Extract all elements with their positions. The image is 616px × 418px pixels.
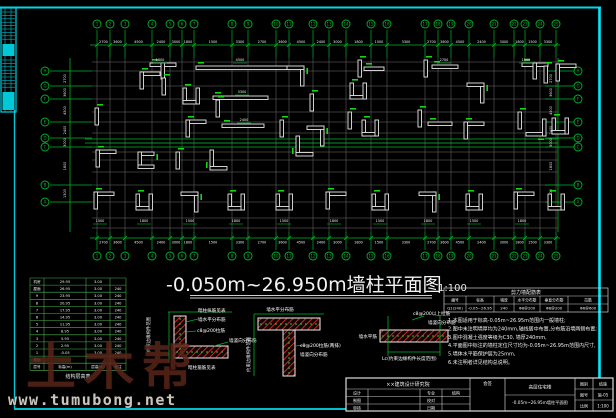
dimension-text-left: 3600 (63, 88, 67, 97)
axis-label-top: 25 (553, 22, 559, 27)
axis-label-top: 19 (448, 22, 454, 27)
wall-dim-mark (516, 188, 522, 190)
wall-dim-mark (326, 128, 328, 134)
plan-dimension-text: 1500 (280, 219, 289, 223)
floor-table-cell: 3.00 (94, 316, 103, 320)
dimension-text-bottom: 1800 (515, 241, 524, 245)
watermark-brand: 土木帮 (26, 338, 200, 396)
wall-outline (385, 194, 389, 210)
wall-dim-mark (224, 120, 230, 122)
axis-label-bottom: 3 (124, 254, 127, 259)
dimension-text-bottom: 2400 (157, 241, 166, 245)
floor-table-cell: 9 (36, 294, 39, 298)
wall-dim-mark (215, 92, 221, 94)
floor-table-cell: 3.00 (94, 301, 103, 305)
wall-outline (418, 110, 422, 127)
dimension-text-bottom: 2700 (427, 241, 436, 245)
wall-segment (136, 190, 153, 210)
binding-strip (1, 8, 16, 112)
dimension-text-top: 3300 (236, 40, 245, 44)
axis-label-bottom: 14 (343, 254, 349, 259)
titleblock-right-value: 结施 (599, 381, 607, 387)
wall-outline (561, 194, 565, 210)
wall-dim-mark (466, 118, 472, 120)
wall-dim-mark (538, 138, 544, 140)
dimension-text-top: 2700 (427, 40, 436, 44)
titleblock-cell: 专业 (427, 390, 435, 396)
wall-outline (216, 100, 220, 117)
wall-outline (176, 152, 180, 169)
dimension-text-top: 3000 (333, 40, 342, 44)
drawing-scale: 1:100 (438, 283, 467, 294)
shear-wall-table: 剪力墙配筋表编号标高墙厚水平分布筋垂直分布筋拉筋Q1(240)-0.05~26.… (444, 288, 608, 312)
wall-segment (350, 79, 367, 99)
wall-outline (556, 64, 560, 81)
wall-segment (276, 190, 293, 210)
floor-table-cell: 240 (115, 301, 123, 305)
dimension-text-bottom: 3000 (333, 241, 342, 245)
wall-outline (138, 152, 142, 166)
axis-label-top: 4 (151, 22, 154, 27)
dimension-text-top: 3300 (544, 40, 553, 44)
dimension-text-bottom: 3600 (278, 241, 287, 245)
detail3-label-lc: Lc(约束边缘构件长度范围) (382, 355, 437, 362)
dimension-text-left: 3000 (63, 138, 67, 147)
wall-segment (464, 118, 484, 139)
dimension-text-top: 1500 (209, 40, 218, 44)
wall-dim-mark (96, 188, 102, 190)
plan-dimension-text: 1800 (518, 219, 527, 223)
wall-dim-mark (468, 190, 474, 192)
wall-outline (479, 194, 483, 210)
axis-label-top: 20 (466, 22, 472, 27)
wall-dim-mark (278, 190, 284, 192)
dimension-text-top: 1800 (515, 40, 524, 44)
note-line: 5.墙体水平筋保护层为25mm, (448, 351, 516, 358)
dimension-text-bottom: 2700 (258, 241, 267, 245)
wall-table-title: 剪力墙配筋表 (511, 289, 541, 296)
axis-label-bottom: 2 (109, 254, 112, 259)
wall-segment (556, 60, 576, 81)
wall-dim-mark (178, 148, 184, 150)
watermark-url: www.tumubong.net (8, 391, 177, 409)
wall-table-cell: Φ8@200 (519, 306, 536, 311)
wall-dim-mark (142, 68, 148, 70)
detail2-label-vert: 墙竖向分布筋 (300, 351, 328, 358)
wall-outline (210, 167, 227, 171)
wall-dim-mark (438, 194, 440, 200)
wall-outline (375, 120, 379, 136)
dimension-text-left: 2400 (63, 126, 67, 135)
wall-outline (287, 66, 304, 70)
axis-label-left: E (44, 120, 47, 125)
axis-label-top: 5 (169, 22, 172, 27)
wall-outline (162, 78, 166, 95)
axis-label-left: H (43, 69, 46, 74)
dimension-text-top: 3600 (440, 40, 449, 44)
plan-dimension-text: 2400 (240, 118, 249, 122)
wall-dim-mark (486, 85, 488, 91)
titleblock-right-label: 图号 (580, 392, 588, 398)
wall-table-header: 水平分布筋 (518, 298, 537, 303)
wall-outline (372, 207, 386, 211)
floor-table-cell: 240 (115, 316, 123, 320)
wall-outline (467, 83, 484, 87)
plan-dimension-text: 1500 (96, 219, 105, 223)
sheet-title-block: ××建筑设计研究院设计专业结构制图校对审核日期会签高层住宅楼-0.05m~26.… (346, 378, 613, 411)
dimension-text-top: 3000 (500, 40, 509, 44)
detail-t-junction: 墙水平分布筋 c8@200拉筋(两排) 墙竖向分布筋 约束边缘构件范围 (245, 306, 341, 376)
dimension-text-bottom: 1500 (375, 241, 384, 245)
titleblock-right-value: 施-05 (598, 392, 609, 398)
floor-plan: 1122270027003336003600444500450055240024… (41, 20, 582, 260)
wall-dim-mark (312, 90, 318, 92)
wall-outline (358, 60, 362, 77)
wall-segment (358, 56, 366, 77)
dimension-text-bottom: 3300 (544, 241, 553, 245)
wall-outline (96, 150, 100, 167)
binding-strip-text-block (3, 44, 15, 56)
wall-segment (466, 190, 483, 210)
dimension-text-top: 1800 (354, 40, 363, 44)
wall-outline (307, 126, 324, 130)
wall-dim-mark (366, 63, 372, 65)
floor-table-cell: 11.95 (60, 323, 70, 327)
wall-outline (350, 96, 364, 100)
axis-label-top: 9 (247, 22, 250, 27)
axis-label-bottom: 6 (181, 254, 184, 259)
dimension-text-top: 2700 (258, 40, 267, 44)
wall-outline (518, 112, 522, 129)
plan-dimension-text: 1800 (232, 219, 241, 223)
plan-dimension-text: 1500 (470, 219, 479, 223)
wall-table-header: 编号 (451, 298, 459, 303)
titleblock-cell: 审核 (353, 405, 361, 411)
wall-dim-mark (364, 116, 370, 118)
wall-dim-mark (156, 154, 158, 160)
note-line: 3.图中混凝土强度等级为C30, 墙厚240mm, (448, 334, 547, 341)
plan-dimension-text: 1500 (376, 219, 385, 223)
floor-table-cell: 机房 (33, 279, 41, 284)
page-title: -0.050m~26.950m墙柱平面图 (166, 274, 442, 296)
floor-table-cell: 20.95 (60, 301, 70, 305)
dimension-text-bottom: 3600 (113, 241, 122, 245)
dimension-text-top: 3300 (402, 40, 411, 44)
wall-outline (280, 120, 284, 137)
titleblock-cell: 制图 (353, 397, 361, 403)
floor-table-cell: 8.95 (61, 330, 69, 334)
wall-outline (222, 124, 264, 128)
detail2-label-tie: c8@200拉筋(两排) (300, 342, 341, 349)
titleblock-cell: 设计 (353, 390, 361, 396)
detail1-label-top: 暗柱纵筋见表 (198, 307, 226, 314)
dimension-text-left: 1800 (63, 162, 67, 171)
titleblock-project: 高层住宅楼 (529, 384, 552, 391)
floor-table-cell: 240 (115, 308, 123, 312)
dimension-text-top: 2400 (317, 40, 326, 44)
wall-outline (364, 67, 384, 71)
wall-dim-mark (98, 146, 104, 148)
floor-table-cell: 17.95 (60, 308, 70, 312)
axis-label-bottom: 13 (326, 254, 332, 259)
axis-label-top: 22 (511, 22, 517, 27)
axis-label-top: 6 (181, 22, 184, 27)
axis-label-left: C (44, 145, 47, 150)
floor-table-cell: 26.95 (60, 287, 70, 291)
floor-table-cell: 屋面 (33, 286, 41, 291)
wall-dim-mark (352, 79, 358, 81)
detail2-label-left: 约束边缘构件范围 (245, 336, 252, 372)
dimension-text-right: 3000 (549, 138, 553, 147)
wall-outline (241, 194, 245, 210)
wall-dim-mark (292, 148, 294, 154)
wall-outline (464, 122, 468, 139)
wall-outline (161, 63, 165, 79)
wall-dim-mark (282, 116, 288, 118)
wall-outline (432, 65, 458, 69)
wall-outline (94, 192, 98, 209)
floor-table-cell: 240 (115, 323, 123, 327)
plan-dimension-text: 1800 (140, 219, 149, 223)
dimension-text-top: 1500 (528, 40, 537, 44)
wall-outline (228, 207, 242, 211)
floor-table-cell: 240 (115, 294, 123, 298)
wall-outline (326, 192, 330, 209)
wall-table-header: 拉筋 (584, 298, 592, 303)
wall-segment (96, 146, 116, 167)
wall-outline (348, 112, 352, 129)
wall-outline (276, 207, 290, 211)
floor-table-cell: 29.95 (60, 280, 70, 284)
wall-outline (95, 108, 99, 125)
wall-outline (196, 88, 200, 104)
axis-label-bottom: 8 (231, 254, 234, 259)
dimension-text-top: 3600 (113, 40, 122, 44)
dimension-text-top: 1800 (184, 40, 193, 44)
wall-outline (363, 83, 367, 99)
axis-label-left: B (44, 183, 47, 188)
axis-label-top: 21 (491, 22, 497, 27)
axis-label-left: A (44, 200, 47, 205)
plan-dimension-text: 1800 (156, 58, 165, 62)
floor-table-cell: 3.00 (94, 308, 103, 312)
wall-dim-mark (200, 194, 202, 200)
titleblock-cell: 结构 (452, 390, 460, 396)
dimension-text-right: 4500 (549, 106, 553, 115)
plan-dimension-text: 2700 (440, 58, 449, 62)
wall-segment (348, 108, 356, 129)
wall-segment (362, 116, 379, 136)
floor-table-cell: 3.00 (94, 330, 103, 334)
axis-label-bottom: 19 (448, 254, 454, 259)
wall-dim-mark (328, 188, 334, 190)
detail1-label-horiz-rebar: 墙水平分布筋 (198, 316, 226, 323)
detail3-label-horiz: 墙水平筋 (359, 333, 378, 340)
dimension-text-bottom: 3000 (500, 241, 509, 245)
wall-segment (183, 84, 200, 104)
floor-table-cell: 14.95 (60, 316, 70, 320)
dimension-text-bottom: 3000 (172, 241, 181, 245)
axis-label-bottom: 23 (522, 254, 528, 259)
dimension-text-top: 2700 (99, 40, 108, 44)
dimension-text-left: 1500 (63, 189, 67, 198)
axis-label-top: 15 (368, 22, 374, 27)
titleblock-right-label: 比例 (580, 403, 588, 409)
dimension-text-top: 4500 (134, 40, 143, 44)
wall-outline (533, 63, 537, 79)
wall-dim-mark (426, 56, 432, 58)
dimension-text-top: 4500 (297, 40, 306, 44)
axis-label-top: 14 (343, 22, 349, 27)
floor-table-cell: 6 (36, 316, 39, 320)
wall-segment (364, 63, 384, 71)
axis-label-bottom: 21 (491, 254, 497, 259)
detail3-label-vert: 墙竖向分布筋 (428, 319, 456, 326)
wall-table-cell: Q1(240) (447, 306, 463, 311)
note-line: 2.图中未注明墙厚均为240mm,轴线居中布置,分布筋沿墙两侧布置; (448, 325, 597, 332)
wall-outline (196, 66, 288, 70)
detail3-label-tie: c8@200以上拉筋 (413, 310, 451, 317)
note-line: 6.未注明者详见结构总说明。 (448, 359, 513, 366)
dimension-text-bottom: 1800 (354, 241, 363, 245)
dimension-text-bottom: 4500 (134, 241, 143, 245)
dimension-text-left: 2700 (63, 74, 67, 83)
dimension-text-top: 1500 (375, 40, 384, 44)
dimension-text-bottom: 1500 (528, 241, 537, 245)
axis-label-bottom: 11 (286, 254, 292, 259)
dimension-text-bottom: 4500 (456, 241, 465, 245)
plan-dimension-text: 1500 (522, 58, 531, 62)
dimension-text-right: 2700 (549, 74, 553, 83)
axis-label-top: 23 (522, 22, 528, 27)
wall-outline (186, 120, 190, 137)
axis-label-top: 8 (231, 22, 234, 27)
plan-dimension-text: 1800 (424, 219, 433, 223)
wall-dim-mark (164, 74, 170, 76)
wall-dim-mark (185, 84, 191, 86)
axis-label-bottom: 1 (96, 254, 99, 259)
floor-table-cell: 5 (36, 323, 38, 327)
floor-table-cell: 240 (115, 330, 123, 334)
titleblock-cell: 日期 (427, 405, 435, 411)
axis-label-top: 17 (422, 22, 428, 27)
wall-outline (138, 165, 154, 169)
axis-label-top: 1 (96, 22, 99, 27)
wall-dim-mark (306, 68, 308, 74)
wall-table-cell: Φ6@600 (580, 306, 597, 311)
wall-outline (296, 153, 313, 157)
dimension-text-bottom: 3600 (440, 241, 449, 245)
wall-table-cell: -0.05~26.95 (468, 306, 492, 311)
axis-label-right: A (577, 200, 580, 205)
wall-outline (552, 131, 566, 135)
axis-label-top: 16 (384, 22, 390, 27)
dimension-text-bottom: 1800 (184, 241, 193, 245)
axis-label-top: 11 (286, 22, 292, 27)
dimension-text-top: 4500 (456, 40, 465, 44)
cad-drawing-canvas[interactable]: 1122270027003336003600444500450055240024… (0, 0, 616, 418)
axis-label-bottom: 17 (422, 254, 428, 259)
note-line: 1.本图适用于标高-0.05m~26.95m范围内一般墙柱; (448, 317, 566, 324)
wall-outline (136, 207, 150, 211)
dimension-text-bottom: 2400 (477, 241, 486, 245)
titleblock-cell: 校对 (427, 397, 435, 403)
axis-label-right: G (576, 84, 579, 89)
axis-label-bottom: 4 (151, 254, 154, 259)
titleblock-drawing-name: -0.05m~26.95m墙柱平面图 (512, 399, 567, 406)
detail1-label-tie: c8@200拉筋 (197, 327, 225, 334)
axis-label-top: 2 (109, 22, 112, 27)
titleblock-org: ××建筑设计研究院 (386, 381, 429, 388)
general-notes: 1.本图适用于标高-0.05m~26.95m范围内一般墙柱;2.图中未注明墙厚均… (448, 317, 597, 366)
wall-dim-mark (198, 62, 204, 64)
wall-dim-mark (550, 190, 556, 192)
axis-label-bottom: 7 (193, 254, 196, 259)
wall-outline (544, 66, 548, 83)
plan-dimension-text: 3300 (238, 90, 247, 94)
wall-outline (428, 122, 452, 126)
axis-label-left: G (43, 84, 46, 89)
wall-dim-mark (430, 118, 436, 120)
detail1-label-vert-rebar: 墙竖向分布筋 (229, 337, 257, 344)
dimension-text-bottom: 3300 (402, 241, 411, 245)
wall-outline (362, 133, 376, 137)
wall-outline (466, 207, 480, 211)
wall-segment (287, 66, 308, 86)
dimension-text-top: 3000 (172, 40, 181, 44)
axis-label-bottom: 25 (553, 254, 559, 259)
axis-label-bottom: 5 (169, 254, 172, 259)
wall-table-cell: 240 (500, 306, 508, 311)
axis-label-bottom: 16 (384, 254, 390, 259)
axis-label-bottom: 18 (435, 254, 441, 259)
axis-label-bottom: 9 (247, 254, 250, 259)
wall-segment (176, 148, 184, 169)
wall-segment (280, 116, 288, 137)
titleblock-right-label: 图别 (580, 381, 588, 387)
floor-table-cell: 23.95 (60, 294, 70, 298)
dimension-text-bottom: 2700 (99, 241, 108, 245)
wall-dim-mark (520, 108, 526, 110)
wall-outline (514, 192, 518, 209)
axis-label-top: 12 (310, 22, 316, 27)
dimension-text-top: 2400 (477, 40, 486, 44)
wall-dim-mark (554, 114, 560, 116)
dimension-text-right: 1800 (549, 162, 553, 171)
axis-label-top: 10 (273, 22, 279, 27)
axis-label-top: 13 (326, 22, 332, 27)
dimension-text-top: 2400 (157, 40, 166, 44)
watermark: 土木帮 www.tumubong.net (8, 338, 200, 409)
floor-table-cell: 3.00 (94, 294, 103, 298)
wall-dim-mark (188, 116, 194, 118)
axis-label-right: H (576, 69, 579, 74)
axis-label-left: F (44, 97, 47, 102)
axis-label-bottom: 12 (310, 254, 316, 259)
wall-dim-mark (230, 190, 236, 192)
plan-dimension-text: 4500 (236, 58, 245, 62)
axis-label-bottom: 22 (511, 254, 517, 259)
floor-table-cell: 240 (115, 287, 123, 291)
wall-segment (310, 90, 318, 111)
wall-segment (428, 118, 452, 126)
axis-label-top: 18 (435, 22, 441, 27)
axis-label-bottom: 24 (537, 254, 543, 259)
wall-outline (424, 60, 428, 77)
drawing-title-block: -0.050m~26.950m墙柱平面图 1:100 (166, 274, 467, 298)
wall-dim-mark (374, 190, 380, 192)
wall-segment (186, 116, 206, 137)
